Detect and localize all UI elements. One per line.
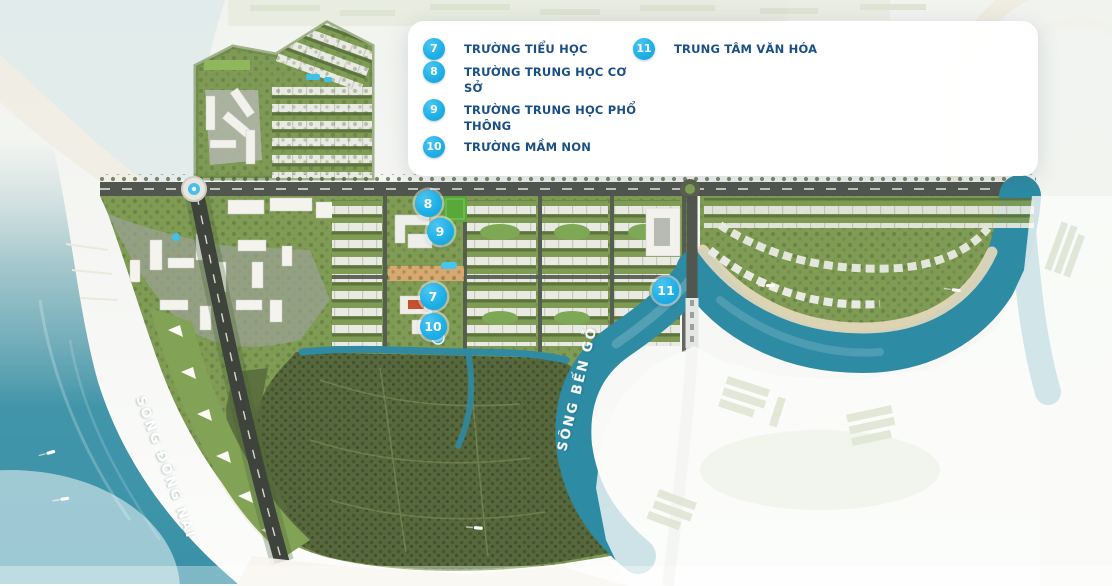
legend-marker-11-icon: 11	[633, 38, 655, 60]
map-marker-10[interactable]: 10	[420, 313, 447, 340]
legend-marker-9-icon: 9	[423, 99, 445, 121]
main-road	[100, 174, 1036, 199]
map-marker-7[interactable]: 7	[420, 283, 447, 310]
legend-item-label: TRƯỜNG TRUNG HỌC CƠ SỞ	[464, 64, 642, 96]
legend-item-label: TRƯỜNG TIỂU HỌC	[464, 41, 642, 57]
legend-item-label: TRƯỜNG MẦM NON	[464, 139, 642, 155]
masterplan-scene: SÔNG ĐỒNG NAI SÔNG BẾN GỖ 8 9 7 10 11 7 …	[0, 0, 1112, 586]
legend-marker-7-icon: 7	[423, 38, 445, 60]
map-marker-9[interactable]: 9	[427, 218, 454, 245]
legend-marker-8-icon: 8	[423, 61, 445, 83]
legend-item-trung-tam-van-hoa: 11 TRUNG TÂM VĂN HÓA	[633, 38, 852, 60]
map-marker-11[interactable]: 11	[652, 277, 679, 304]
legend-item-truong-mam-non: 10 TRƯỜNG MẦM NON	[423, 136, 642, 158]
legend-marker-10-icon: 10	[423, 136, 445, 158]
map-marker-8[interactable]: 8	[415, 190, 442, 217]
legend-item-truong-trung-hoc-pho-thong: 9 TRƯỜNG TRUNG HỌC PHỔ THÔNG	[423, 99, 642, 134]
legend-item-label: TRƯỜNG TRUNG HỌC PHỔ THÔNG	[464, 102, 642, 134]
legend-panel: 7 TRƯỜNG TIỂU HỌC 8 TRƯỜNG TRUNG HỌC CƠ …	[408, 21, 1038, 176]
legend-item-truong-tieu-hoc: 7 TRƯỜNG TIỂU HỌC	[423, 38, 642, 60]
legend-item-truong-trung-hoc-co-so: 8 TRƯỜNG TRUNG HỌC CƠ SỞ	[423, 61, 642, 96]
legend-item-label: TRUNG TÂM VĂN HÓA	[674, 41, 852, 57]
